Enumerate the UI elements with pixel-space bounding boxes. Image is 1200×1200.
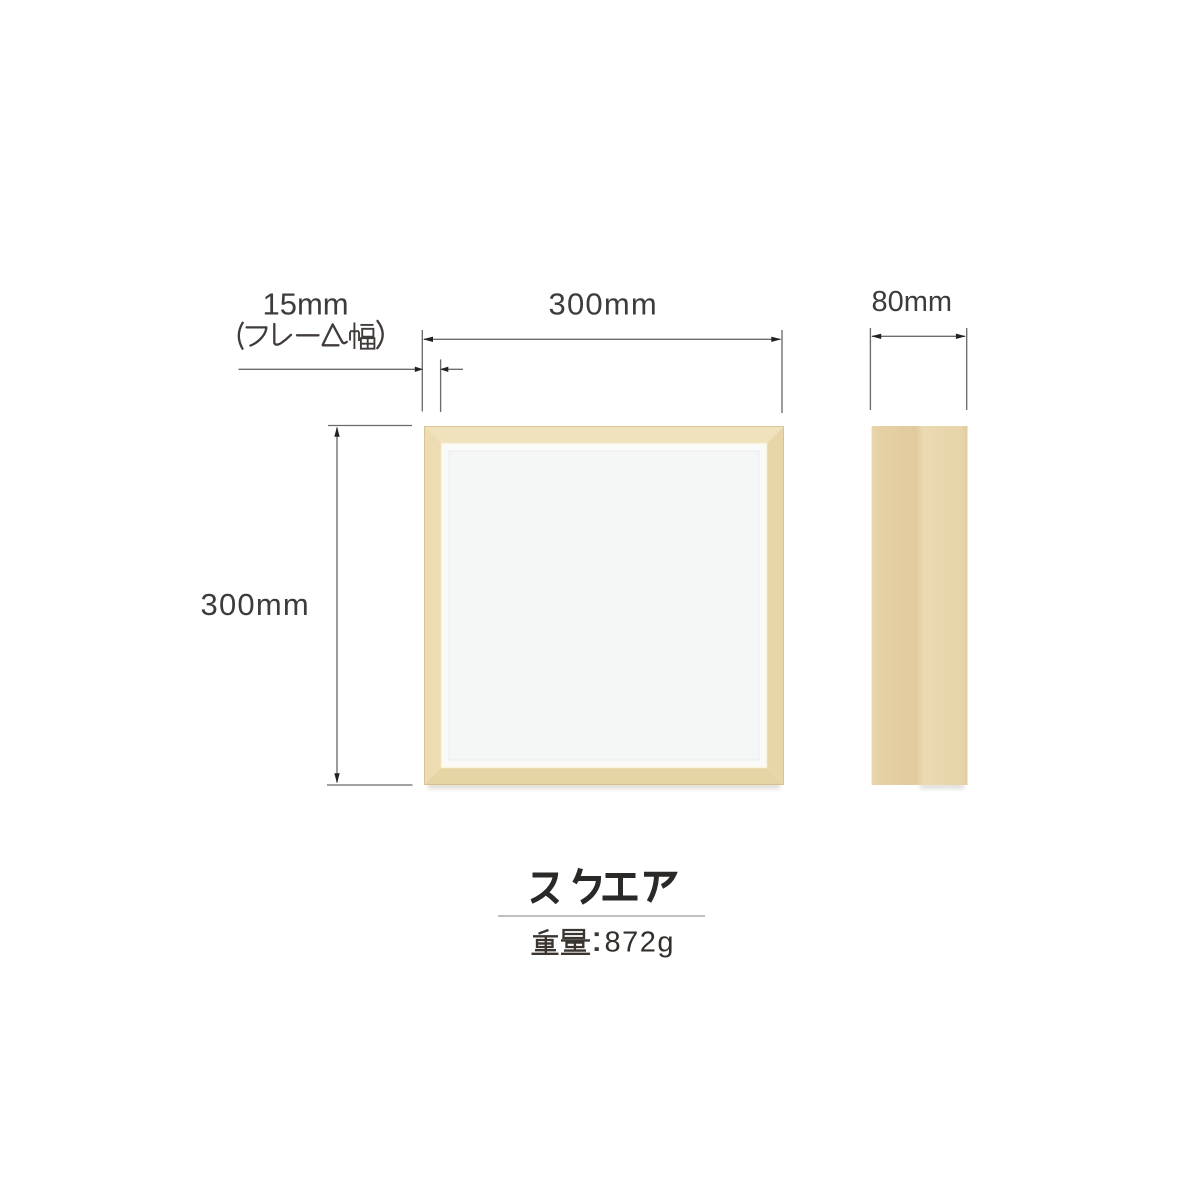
svg-text:300mm: 300mm	[549, 287, 658, 322]
svg-text:300mm: 300mm	[201, 587, 310, 622]
svg-text:80mm: 80mm	[872, 286, 953, 318]
svg-text:15mm: 15mm	[263, 287, 349, 322]
svg-text:872g: 872g	[605, 927, 676, 959]
